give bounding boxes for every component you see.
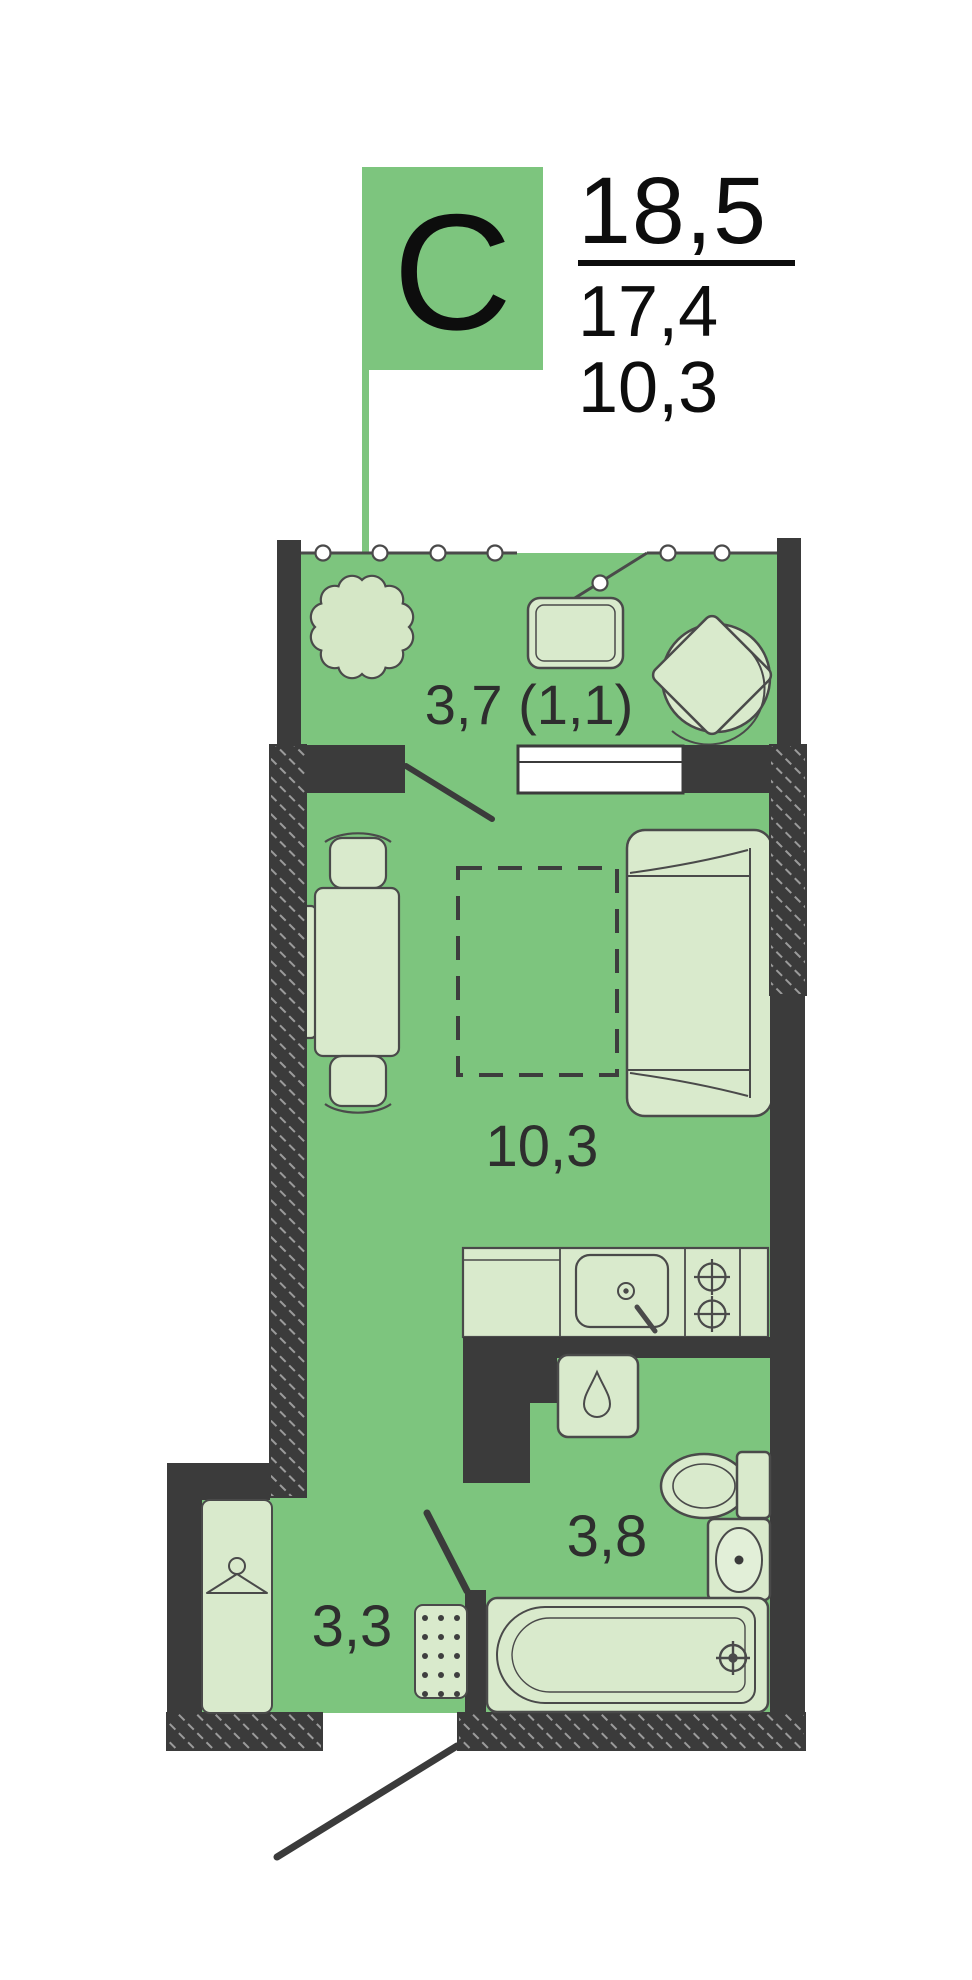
glazing-joint-icon	[373, 546, 388, 561]
balcony-right-wall	[777, 538, 801, 745]
chair	[330, 1056, 386, 1106]
bottom-wall-right	[458, 1713, 805, 1750]
left-outer-wall	[270, 745, 306, 1497]
right-wall-lower	[770, 995, 805, 1713]
bathroom-west-wall-upper	[463, 1337, 557, 1403]
hallway-left-wall	[167, 1463, 202, 1713]
glazing-joint-icon	[488, 546, 503, 561]
plant-icon	[311, 576, 413, 678]
dining-table	[315, 888, 399, 1056]
washing-machine-icon	[558, 1355, 638, 1437]
bathroom-west-wall-lower	[463, 1403, 530, 1483]
balcony-table	[528, 598, 623, 668]
balcony-left-wall	[277, 540, 301, 745]
glazing-joint-icon	[431, 546, 446, 561]
bottom-wall-left	[167, 1713, 322, 1750]
floorplan-drawing: 3,7 (1,1) 10,3 3,8 3,3	[0, 0, 972, 1980]
hallway-label: 3,3	[312, 1594, 393, 1659]
sofa	[627, 830, 772, 1116]
bathroom-label: 3,8	[567, 1504, 648, 1569]
glazing-joint-icon	[316, 546, 331, 561]
flag-stem	[362, 368, 369, 558]
chair	[330, 838, 386, 888]
entrance-door-leaf	[277, 1746, 457, 1857]
bathtub-icon	[487, 1598, 768, 1712]
shoe-cabinet	[415, 1605, 467, 1698]
floorplan-page: С 18,5 17,4 10,3	[0, 0, 972, 1980]
glazing-joint-icon	[661, 546, 676, 561]
balcony-label: 3,7 (1,1)	[425, 673, 634, 736]
window	[518, 746, 683, 793]
divider-wall-left	[306, 745, 405, 793]
divider-wall-right	[683, 745, 770, 793]
wardrobe	[202, 1500, 272, 1713]
glazing-joint-icon	[715, 546, 730, 561]
toilet-icon	[661, 1452, 770, 1518]
washbasin-icon	[708, 1519, 770, 1600]
living-room-label: 10,3	[486, 1114, 599, 1179]
glazing-joint-icon	[593, 576, 608, 591]
bathroom-door-jamb	[465, 1590, 486, 1713]
right-outer-wall-upper	[770, 745, 806, 995]
kitchen-counter	[463, 1248, 768, 1337]
